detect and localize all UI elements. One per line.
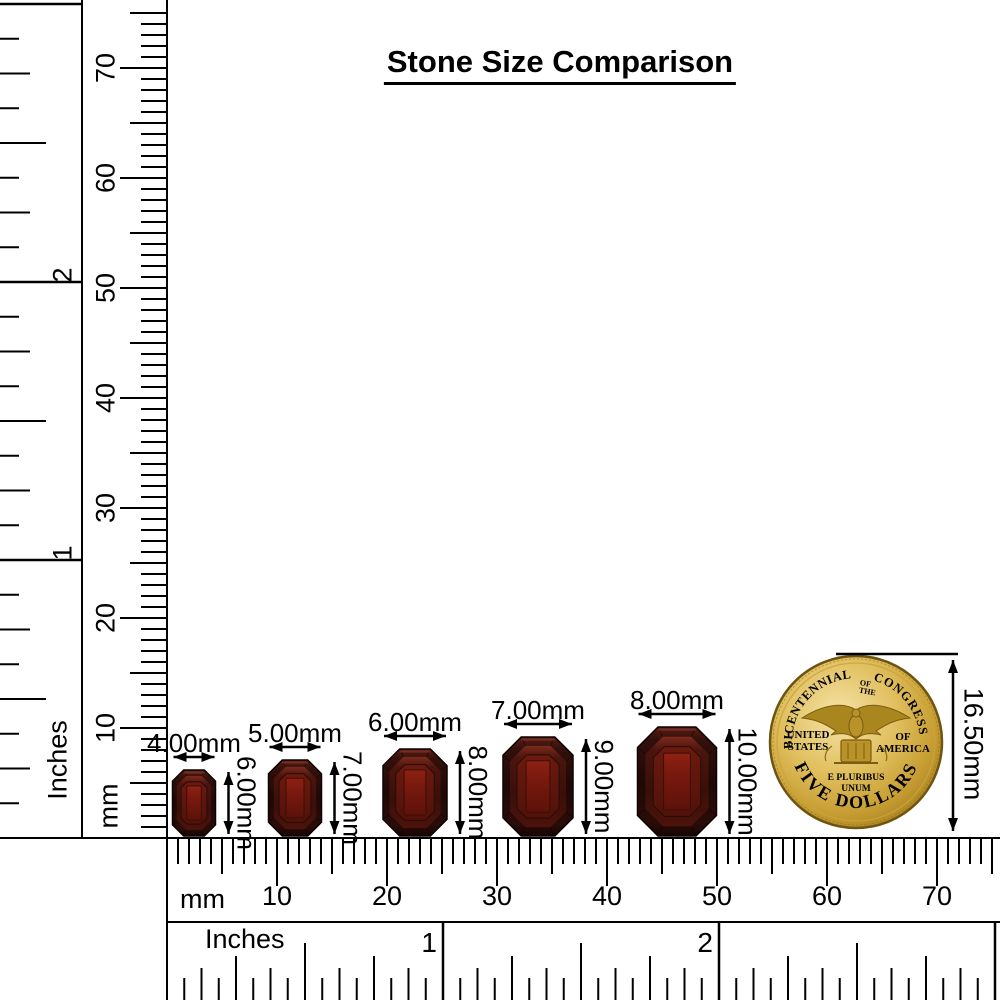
rulers: 12Inches10203040506070mm10203040506070mm… (0, 0, 1000, 1000)
bottom-ruler-mm-number: 20 (372, 881, 402, 911)
bottom-ruler-mm-label: mm (180, 884, 225, 914)
coin: BICENTENNIALCONGRESSFIVE DOLLARSOFTHEUNI… (770, 656, 942, 828)
coin-text-states: STATES (788, 741, 829, 753)
left-ruler-mm-number: 20 (90, 603, 120, 633)
coin-text-e-pluribus: E PLURIBUS (828, 773, 885, 783)
left-ruler-inch-number: 1 (47, 545, 77, 560)
page-title: Stone Size Comparison (384, 44, 736, 85)
stone-table (187, 786, 202, 820)
stone-width-label: 6.00mm (368, 707, 462, 737)
left-ruler-mm-number: 60 (90, 163, 120, 193)
stone-3 (383, 749, 447, 836)
bottom-ruler-mm-number: 70 (922, 881, 952, 911)
stone-1 (173, 770, 216, 836)
coin-measure-label: 16.50mm (959, 688, 989, 801)
bottom-ruler-mm-number: 10 (262, 881, 292, 911)
bottom-ruler-mm-number: 50 (702, 881, 732, 911)
left-ruler-mm-number: 50 (90, 273, 120, 303)
bottom-ruler-mm-number: 40 (592, 881, 622, 911)
left-ruler-inch-number: 2 (47, 267, 77, 282)
stone-width-label: 7.00mm (491, 695, 585, 725)
stone-table (526, 761, 550, 812)
stone-height-label: 9.00mm (589, 740, 619, 834)
left-ruler-mm-number: 10 (90, 713, 120, 743)
stone-height-label: 6.00mm (231, 756, 261, 850)
bottom-ruler-inch-number: 2 (697, 927, 713, 958)
left-ruler-mm-number: 30 (90, 493, 120, 523)
stone-table (664, 753, 691, 810)
coin-eagle-body (849, 715, 863, 737)
left-ruler-mm-label: mm (93, 784, 123, 829)
coin-text-united: UNITED (787, 729, 830, 741)
coin-text-of-2: OF (895, 731, 911, 743)
stone-width-label: 5.00mm (248, 718, 342, 748)
stone-5 (638, 727, 717, 836)
bottom-ruler-inches-label: Inches (205, 924, 285, 954)
stone-2 (269, 760, 322, 836)
coin-text-unum: UNUM (841, 784, 871, 794)
stone-width-label: 4.00mm (147, 728, 241, 758)
left-ruler-mm-number: 40 (90, 383, 120, 413)
stone-height-label: 7.00mm (337, 751, 367, 845)
stone-height-label: 8.00mm (463, 746, 493, 840)
coin-eagle-head (852, 709, 860, 717)
bottom-ruler-mm-number: 60 (812, 881, 842, 911)
stone-width-label: 8.00mm (630, 685, 724, 715)
left-ruler-inches-label: Inches (42, 720, 72, 800)
stone-table (286, 778, 304, 818)
bottom-ruler-mm-number: 30 (482, 881, 512, 911)
stone-table (404, 770, 426, 815)
stone-height-label: 10.00mm (732, 727, 762, 835)
left-ruler-mm-number: 70 (90, 53, 120, 83)
figure-canvas: 12Inches10203040506070mm10203040506070mm… (0, 0, 1000, 1000)
stone-4 (503, 737, 573, 836)
bottom-ruler-inch-number: 1 (421, 927, 437, 958)
stone-size-comparison-figure: 12Inches10203040506070mm10203040506070mm… (0, 0, 1000, 1000)
